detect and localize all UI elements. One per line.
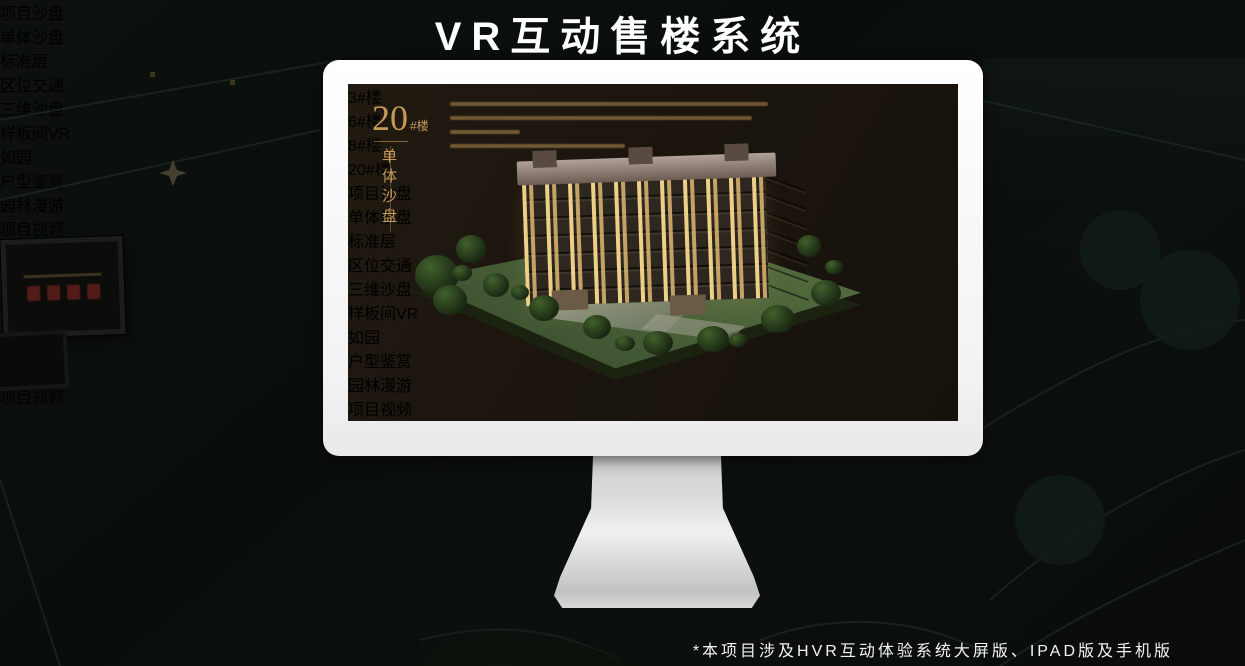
desktop-monitor: 20#楼 单体沙盘 bbox=[323, 60, 983, 456]
tree bbox=[456, 235, 486, 263]
tree bbox=[811, 280, 841, 306]
tree bbox=[483, 273, 509, 297]
sign-small-text bbox=[23, 273, 101, 279]
tree bbox=[797, 235, 821, 257]
pink-tree bbox=[825, 260, 843, 274]
building-model-scene bbox=[406, 134, 861, 386]
map-photo-overlay bbox=[983, 58, 1245, 388]
sign-red-calligraphy bbox=[26, 284, 99, 302]
logo-wordmark: 如园 bbox=[348, 330, 380, 347]
tree bbox=[697, 326, 729, 352]
pink-tree bbox=[511, 285, 529, 300]
pink-tree bbox=[615, 336, 635, 351]
heading-rule bbox=[374, 141, 408, 142]
pink-tree bbox=[452, 265, 472, 281]
building-number-unit: #楼 bbox=[410, 119, 429, 133]
tree bbox=[643, 331, 673, 355]
heading-subtitle: 单体沙盘 bbox=[378, 148, 399, 228]
stage: 20#楼 单体沙盘 bbox=[0, 0, 1245, 666]
building-entrance bbox=[670, 295, 707, 316]
building-number: 20 bbox=[372, 98, 408, 138]
page-title: VR互动售楼系统 bbox=[0, 4, 1245, 62]
description-paragraph bbox=[450, 102, 768, 158]
map-sign bbox=[0, 236, 125, 338]
screen-heading: 20#楼 单体沙盘 bbox=[372, 100, 429, 228]
map-sign-secondary bbox=[0, 330, 69, 393]
tree bbox=[529, 295, 559, 321]
pink-tree bbox=[729, 333, 747, 347]
tree bbox=[761, 305, 795, 333]
footnote: *本项目涉及HVR互动体验系统大屏版、IPAD版及手机版 bbox=[693, 637, 1173, 661]
nav-project-video[interactable]: 项目视频 bbox=[348, 396, 958, 420]
building-front-face bbox=[522, 173, 770, 306]
monitor-screen: 20#楼 单体沙盘 bbox=[348, 84, 958, 421]
